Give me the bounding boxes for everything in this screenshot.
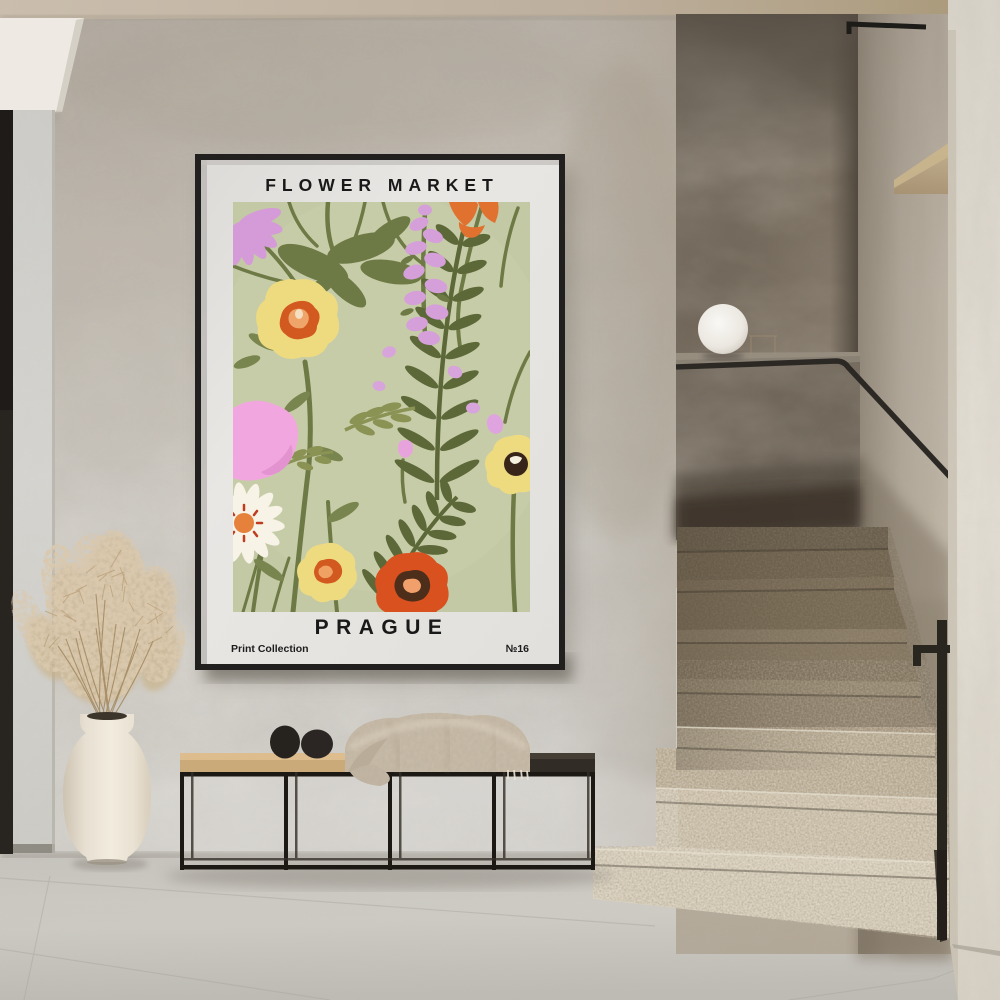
svg-text:Print Collection: Print Collection <box>231 643 309 655</box>
svg-text:№16: №16 <box>506 643 530 655</box>
svg-text:FLOWER MARKET: FLOWER MARKET <box>265 175 499 195</box>
svg-text:PRAGUE: PRAGUE <box>315 616 450 639</box>
